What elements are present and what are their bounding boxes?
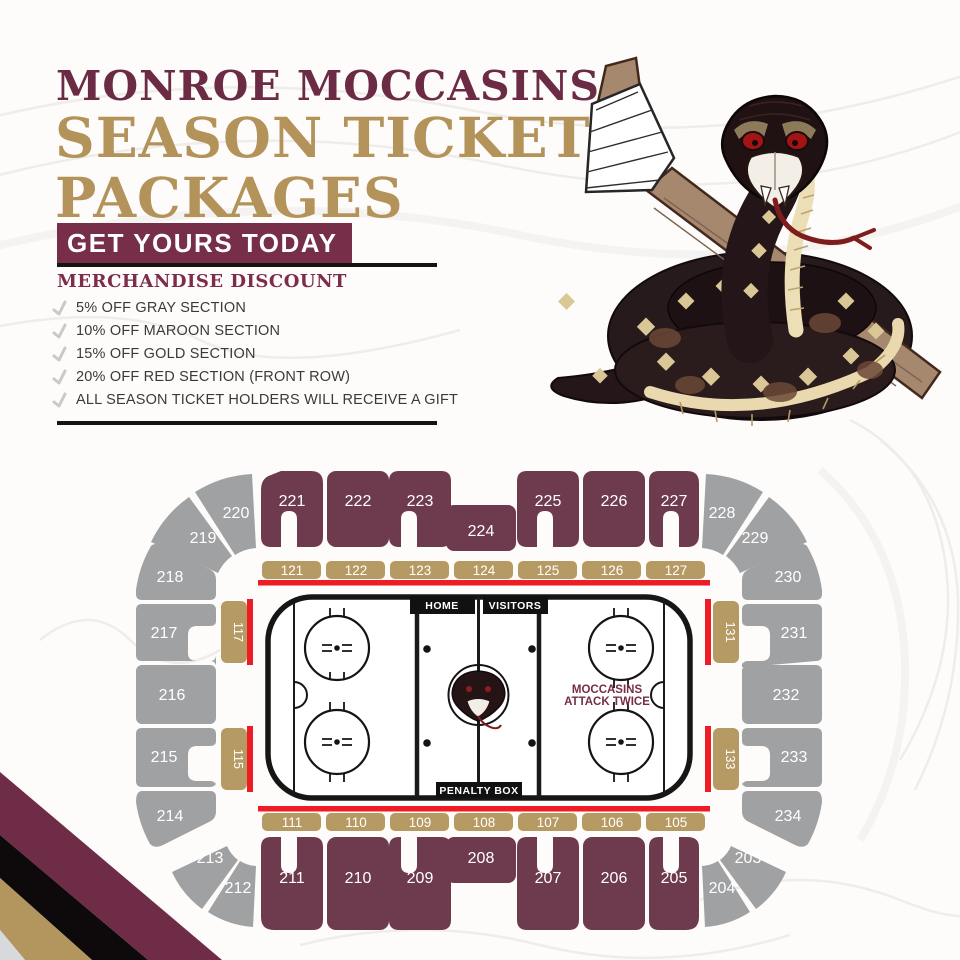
discount-item: 10% OFF MAROON SECTION — [52, 320, 458, 343]
label-230: 230 — [775, 569, 802, 586]
divider-top — [57, 263, 437, 267]
label-133: 133 — [723, 749, 737, 770]
slogan-line2: ATTACK TWICE — [564, 696, 650, 708]
front-row-strip-top — [258, 580, 710, 586]
divider-bottom — [57, 421, 437, 425]
label-220: 220 — [223, 505, 250, 522]
front-row-strip-117 — [247, 599, 253, 665]
label-221: 221 — [279, 493, 306, 510]
penalty-box-label: PENALTY BOX — [439, 785, 518, 797]
hockey-stick-bullet-icon — [52, 323, 68, 339]
label-124: 124 — [473, 563, 496, 578]
label-216: 216 — [159, 687, 186, 704]
label-228: 228 — [709, 505, 736, 522]
label-126: 126 — [601, 563, 624, 578]
label-121: 121 — [281, 563, 304, 578]
hockey-stick-bullet-icon — [52, 300, 68, 316]
label-110: 110 — [345, 815, 367, 830]
label-215: 215 — [151, 749, 178, 766]
label-131: 131 — [723, 622, 737, 643]
label-225: 225 — [535, 493, 562, 510]
slogan-line1: MOCCASINS — [572, 684, 643, 696]
discount-item: 5% OFF GRAY SECTION — [52, 297, 458, 320]
label-227: 227 — [661, 493, 688, 510]
label-232: 232 — [773, 687, 800, 704]
cta-banner: GET YOURS TODAY — [57, 223, 352, 266]
hockey-stick-bullet-icon — [52, 392, 68, 408]
label-123: 123 — [409, 563, 432, 578]
label-223: 223 — [407, 493, 434, 510]
discount-item-label: 10% OFF MAROON SECTION — [76, 323, 280, 339]
seating-chart: HOME VISITORS PENALTY BOX MOCCASINS ATTA… — [0, 440, 960, 960]
season-ticket-poster: MONROE MOCCASINS SEASON TICKET PACKAGES … — [0, 0, 960, 960]
label-209: 209 — [407, 870, 434, 887]
discount-list: 5% OFF GRAY SECTION 10% OFF MAROON SECTI… — [52, 297, 458, 411]
label-122: 122 — [345, 563, 368, 578]
label-219: 219 — [190, 530, 217, 547]
hockey-stick-bullet-icon — [52, 346, 68, 362]
label-106: 106 — [601, 815, 624, 830]
label-117: 117 — [231, 622, 245, 642]
mascot-snake-illustration — [540, 40, 950, 440]
label-224: 224 — [468, 523, 495, 540]
discount-item-label: 20% OFF RED SECTION (FRONT ROW) — [76, 369, 350, 385]
discount-item-label: 15% OFF GOLD SECTION — [76, 346, 256, 362]
label-204: 204 — [709, 880, 736, 897]
label-234: 234 — [775, 808, 802, 825]
poster-title-line2: PACKAGES — [55, 170, 404, 225]
label-108: 108 — [473, 815, 496, 830]
label-109: 109 — [409, 815, 432, 830]
front-row-strip-115 — [247, 726, 253, 792]
poster-title-line1: SEASON TICKET — [55, 110, 590, 165]
label-206: 206 — [601, 870, 628, 887]
label-233: 233 — [781, 749, 808, 766]
ice-rink: HOME VISITORS PENALTY BOX MOCCASINS ATTA… — [268, 596, 690, 798]
home-label: HOME — [425, 600, 459, 612]
label-218: 218 — [157, 569, 184, 586]
discount-item: 20% OFF RED SECTION (FRONT ROW) — [52, 365, 458, 388]
label-115: 115 — [231, 749, 245, 769]
label-217: 217 — [151, 625, 178, 642]
label-127: 127 — [665, 563, 688, 578]
label-125: 125 — [537, 563, 560, 578]
label-105: 105 — [665, 815, 688, 830]
label-111: 111 — [282, 815, 303, 830]
discount-item-label: ALL SEASON TICKET HOLDERS WILL RECEIVE A… — [76, 392, 458, 408]
discount-item-label: 5% OFF GRAY SECTION — [76, 300, 246, 316]
team-name: MONROE MOCCASINS — [56, 62, 600, 110]
visitors-label: VISITORS — [489, 600, 542, 612]
label-222: 222 — [345, 493, 372, 510]
label-231: 231 — [781, 625, 808, 642]
discount-item: 15% OFF GOLD SECTION — [52, 343, 458, 366]
label-229: 229 — [742, 530, 769, 547]
discount-heading: MERCHANDISE DISCOUNT — [57, 271, 347, 292]
hockey-stick-bullet-icon — [52, 369, 68, 385]
label-107: 107 — [537, 815, 560, 830]
label-226: 226 — [601, 493, 628, 510]
label-214: 214 — [157, 808, 184, 825]
label-211: 211 — [279, 870, 305, 887]
discount-item: ALL SEASON TICKET HOLDERS WILL RECEIVE A… — [52, 388, 458, 411]
front-row-strip-bottom — [258, 806, 710, 812]
label-207: 207 — [535, 870, 562, 887]
stick-blade-tape — [586, 84, 674, 192]
front-row-strip-133 — [705, 726, 711, 792]
label-208: 208 — [468, 850, 495, 867]
label-210: 210 — [345, 870, 372, 887]
label-203: 203 — [735, 850, 762, 867]
front-row-strip-131 — [705, 599, 711, 665]
label-205: 205 — [661, 870, 688, 887]
label-212: 212 — [225, 880, 252, 897]
label-213: 213 — [197, 850, 224, 867]
